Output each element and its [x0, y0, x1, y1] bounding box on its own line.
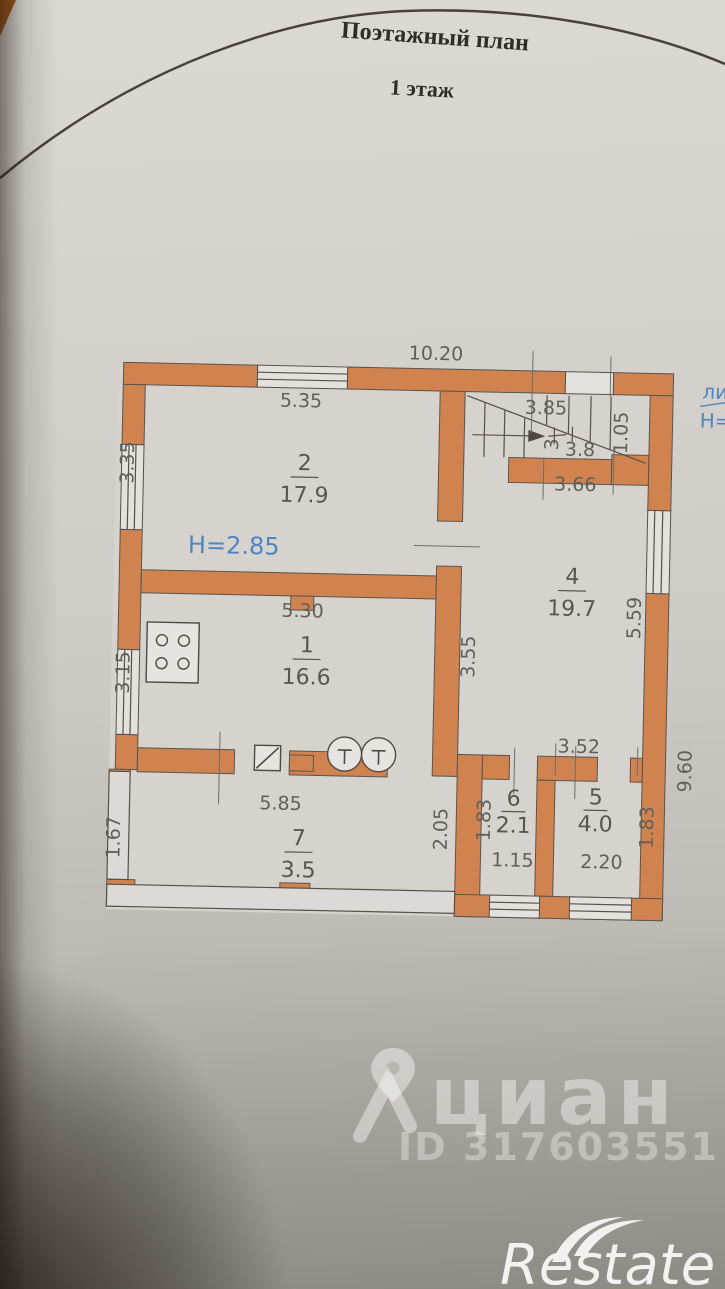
dim-room4-right: 5.59: [623, 597, 646, 640]
footer-brand: Restate: [500, 1233, 715, 1289]
dim-room7-left: 1.67: [102, 816, 125, 859]
cian-watermark: циан ID 317603551: [360, 1048, 719, 1169]
room1-number: 1: [300, 633, 315, 658]
room2-area: 17.9: [279, 483, 328, 509]
dim-room5-top: 3.52: [557, 736, 600, 759]
dim-room4-left: 3.55: [457, 635, 480, 678]
dim-room4-top: 3.66: [554, 473, 597, 496]
dim-overall-top: 10.20: [409, 342, 464, 365]
plan-group: 10.20 5.35 3.35 3.85 3 3.8 1.05 3.66 3.5…: [101, 336, 725, 922]
dim-stair-side: 3: [541, 438, 563, 451]
dim-room7-right: 2.05: [430, 808, 453, 851]
room5-number: 5: [588, 785, 603, 810]
room5-area: 4.0: [577, 812, 613, 838]
restate-logo: Restate: [500, 1217, 715, 1289]
room7-area: 3.5: [280, 858, 316, 884]
margin-note-height: Н=: [700, 408, 725, 433]
dim-stair-top: 3.85: [525, 397, 568, 420]
dim-stair-mid: 3.8: [565, 439, 596, 462]
table-corner: [0, 0, 16, 36]
dim-room1-left: 3.15: [112, 651, 135, 694]
dim-room7-width: 5.85: [259, 792, 302, 815]
room6-area: 2.1: [495, 813, 531, 839]
room1-area: 16.6: [281, 665, 330, 691]
room4-area: 19.7: [547, 596, 596, 622]
floorplan-drawing: 10.20 5.35 3.35 3.85 3 3.8 1.05 3.66 3.5…: [0, 0, 725, 1289]
room4-number: 4: [565, 565, 580, 590]
watermark-listing-id: ID 317603551: [398, 1125, 719, 1169]
dim-room5-right: 1.83: [636, 806, 659, 849]
dim-overall-right: 9.60: [674, 750, 697, 793]
floorplan-photo: Поэтажный план 1 этаж: [0, 0, 725, 1289]
page-edge-curve: [0, 10, 725, 178]
room2-number: 2: [297, 451, 312, 476]
dim-room2-left: 3.35: [116, 441, 139, 484]
dim-room6-left: 1.83: [473, 799, 496, 842]
dim-room5-bottom: 2.20: [580, 851, 623, 874]
dim-room1-width: 5.30: [281, 600, 324, 623]
room7-number: 7: [292, 826, 307, 851]
room6-number: 6: [506, 786, 521, 811]
ceiling-height-note: Н=2.85: [188, 531, 280, 561]
margin-note-liter: ли: [702, 379, 725, 404]
dim-room2-width: 5.35: [280, 390, 323, 413]
stove-icon: [146, 622, 199, 683]
dim-stair-right: 1.05: [610, 411, 633, 454]
dim-room6-bottom: 1.15: [491, 849, 534, 872]
